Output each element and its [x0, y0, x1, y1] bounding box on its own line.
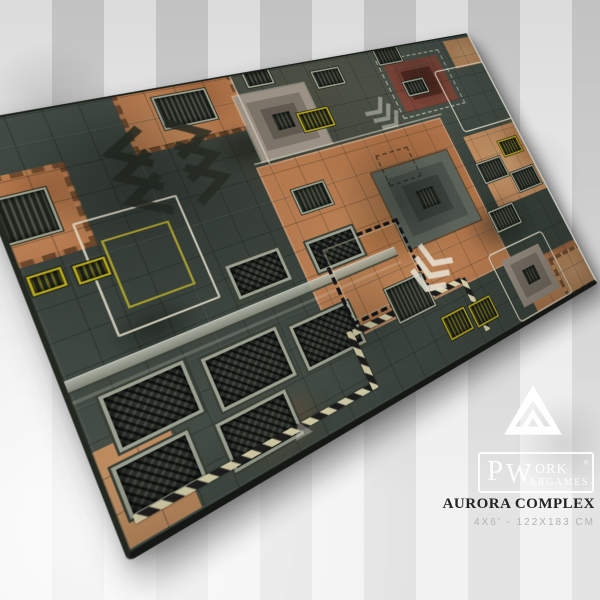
logo-letter-w: W: [506, 460, 531, 487]
product-title: AURORA COMPLEX: [443, 496, 595, 513]
logo-text-ork: ORK: [535, 463, 568, 477]
pwork-triangle-logo: [503, 381, 563, 441]
product-size: 4x6' - 122x183 cm: [443, 517, 595, 528]
logo-text-argames: ARGAMES: [529, 478, 589, 488]
pwork-wargames-logo: P W ORK ® ARGAMES: [478, 452, 594, 493]
product-photo-page: { "product": { "title": "AURORA COMPLEX"…: [0, 0, 600, 600]
registered-mark: ®: [584, 460, 589, 467]
product-caption: AURORA COMPLEX 4x6' - 122x183 cm: [443, 496, 595, 528]
logo-letter-p: P: [487, 457, 503, 486]
